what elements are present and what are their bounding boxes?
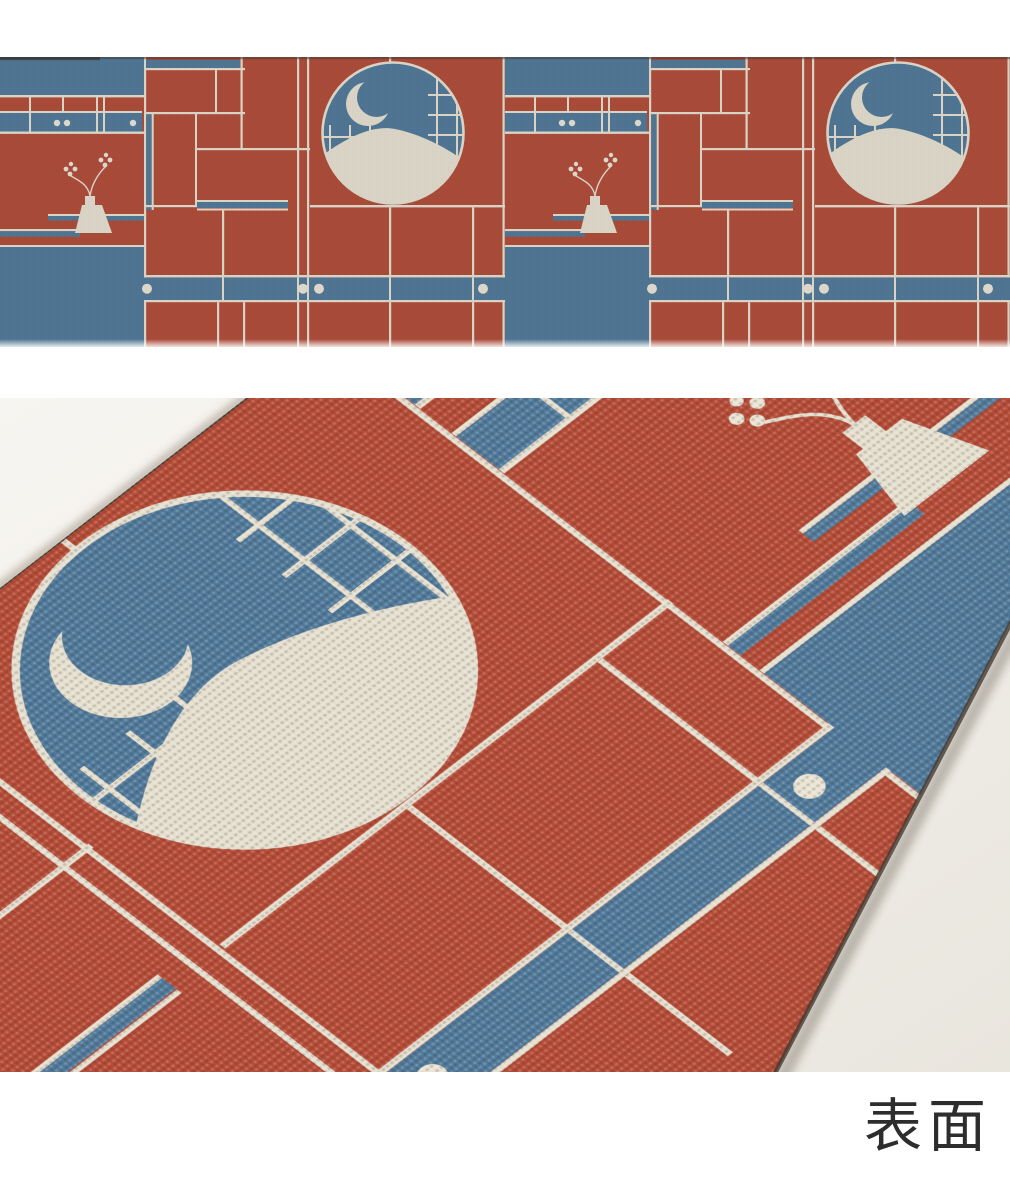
surface-caption: 表面 xyxy=(864,1097,992,1158)
strip-top-selvage xyxy=(0,57,1010,59)
obi-strip-photo xyxy=(0,57,1010,347)
product-image-page: 表面 xyxy=(0,0,1010,1200)
obi-closeup-photo xyxy=(0,398,1010,1072)
